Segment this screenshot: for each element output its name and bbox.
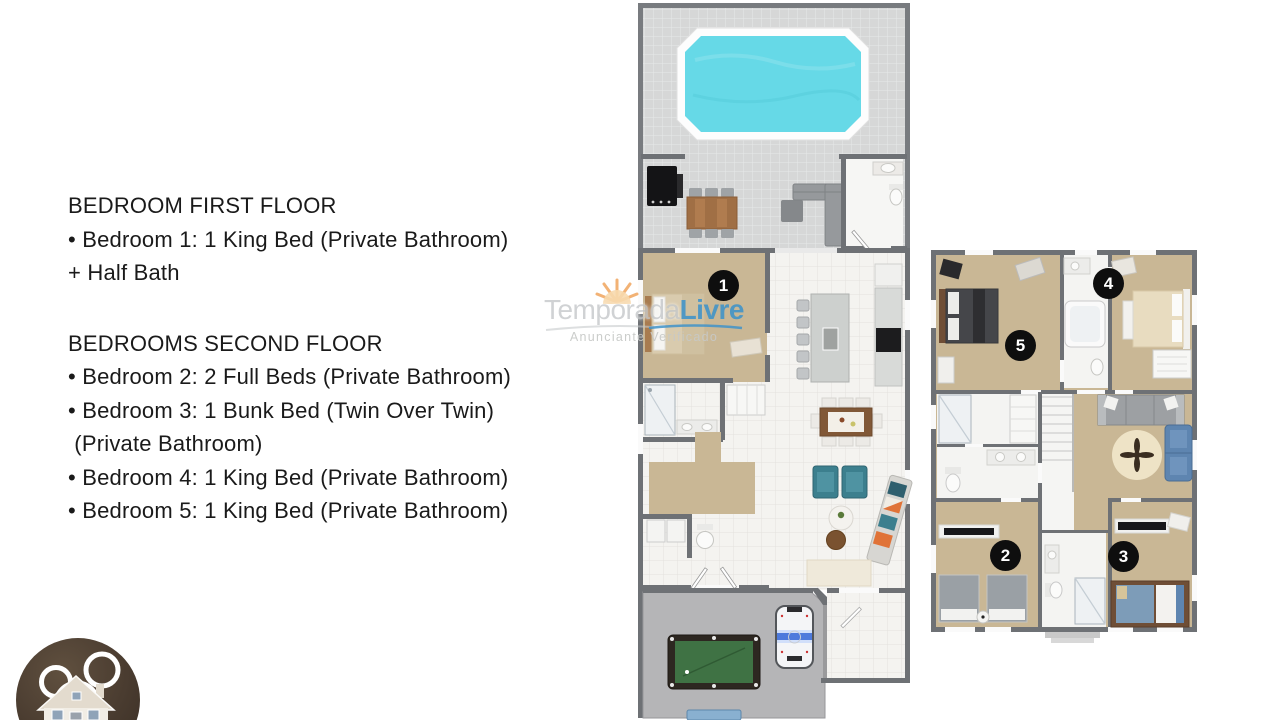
side-patio bbox=[821, 588, 910, 683]
double-vanity bbox=[987, 450, 1035, 465]
full-bed-1 bbox=[939, 575, 979, 622]
first-floor-item-2: + Half Bath bbox=[68, 256, 511, 290]
area-rug bbox=[807, 560, 871, 586]
full-bed-2 bbox=[987, 575, 1027, 622]
tv bbox=[944, 528, 994, 535]
watermark: TemporadaLivre Anunciante Verificado bbox=[538, 266, 750, 350]
second-floor-item-4: • Bedroom 5: 1 King Bed (Private Bathroo… bbox=[68, 494, 511, 528]
second-floor-plan-drawing bbox=[925, 245, 1205, 645]
agency-logo bbox=[12, 634, 144, 720]
second-floor-item-1: • Bedroom 2: 2 Full Beds (Private Bathro… bbox=[68, 360, 511, 394]
watermark-brand-second: Livre bbox=[680, 294, 744, 325]
second-floor-plan bbox=[925, 245, 1205, 650]
washer bbox=[647, 520, 665, 542]
screenshot-root: BEDROOM FIRST FLOOR • Bedroom 1: 1 King … bbox=[0, 0, 1280, 720]
swimming-pool bbox=[677, 28, 869, 140]
second-floor-item-2b: (Private Bathroom) bbox=[68, 427, 511, 461]
stove bbox=[876, 328, 901, 352]
bedroom-4-marker: 4 bbox=[1093, 268, 1124, 299]
first-floor-item-1: • Bedroom 1: 1 King Bed (Private Bathroo… bbox=[68, 223, 511, 257]
dresser bbox=[938, 357, 954, 383]
bunk-bed bbox=[1111, 581, 1189, 627]
second-floor-item-2: • Bedroom 3: 1 Bunk Bed (Twin Over Twin) bbox=[68, 394, 511, 428]
half-bath bbox=[841, 154, 907, 251]
bedroom-5-king-bed bbox=[939, 289, 998, 343]
air-hockey-table bbox=[776, 606, 813, 668]
lanai-wall-right bbox=[839, 154, 907, 159]
pool-table bbox=[668, 635, 760, 689]
dryer bbox=[667, 520, 685, 542]
bedroom-5-marker: 5 bbox=[1005, 330, 1036, 361]
second-floor-heading: BEDROOMS SECOND FLOOR bbox=[68, 327, 511, 361]
toilet bbox=[697, 532, 714, 549]
first-floor-plan bbox=[635, 0, 915, 720]
lanai-wall-left bbox=[641, 154, 685, 159]
bedroom-4-king-bed bbox=[1133, 289, 1190, 349]
toilet bbox=[1091, 359, 1103, 375]
watermark-brand-first: Temporada bbox=[544, 294, 680, 325]
house-with-mouse-ears-logo bbox=[12, 634, 144, 720]
foosball-table bbox=[687, 710, 741, 720]
watermark-brand: TemporadaLivre bbox=[538, 294, 750, 326]
bedroom-2-marker: 2 bbox=[990, 540, 1021, 571]
tv bbox=[1118, 522, 1166, 530]
first-floor-plan-drawing bbox=[635, 0, 915, 720]
stairwell bbox=[1040, 392, 1074, 537]
toilet bbox=[946, 474, 960, 492]
second-floor-item-3: • Bedroom 4: 1 King Bed (Private Bathroo… bbox=[68, 461, 511, 495]
loft-sofa bbox=[1098, 395, 1184, 425]
game-room bbox=[643, 588, 830, 720]
outdoor-dining-set bbox=[687, 188, 737, 238]
bedroom-info-panel: BEDROOM FIRST FLOOR • Bedroom 1: 1 King … bbox=[68, 189, 511, 528]
rear-wall bbox=[641, 248, 907, 253]
refrigerator bbox=[875, 264, 902, 286]
toilet bbox=[1050, 582, 1062, 598]
exterior-steps bbox=[1045, 632, 1100, 638]
watermark-subtitle: Anunciante Verificado bbox=[538, 330, 750, 344]
bedroom-3-marker: 3 bbox=[1108, 541, 1139, 572]
round-chair bbox=[827, 531, 846, 550]
closet bbox=[727, 385, 765, 415]
bench bbox=[1123, 301, 1133, 339]
first-floor-heading: BEDROOM FIRST FLOOR bbox=[68, 189, 511, 223]
